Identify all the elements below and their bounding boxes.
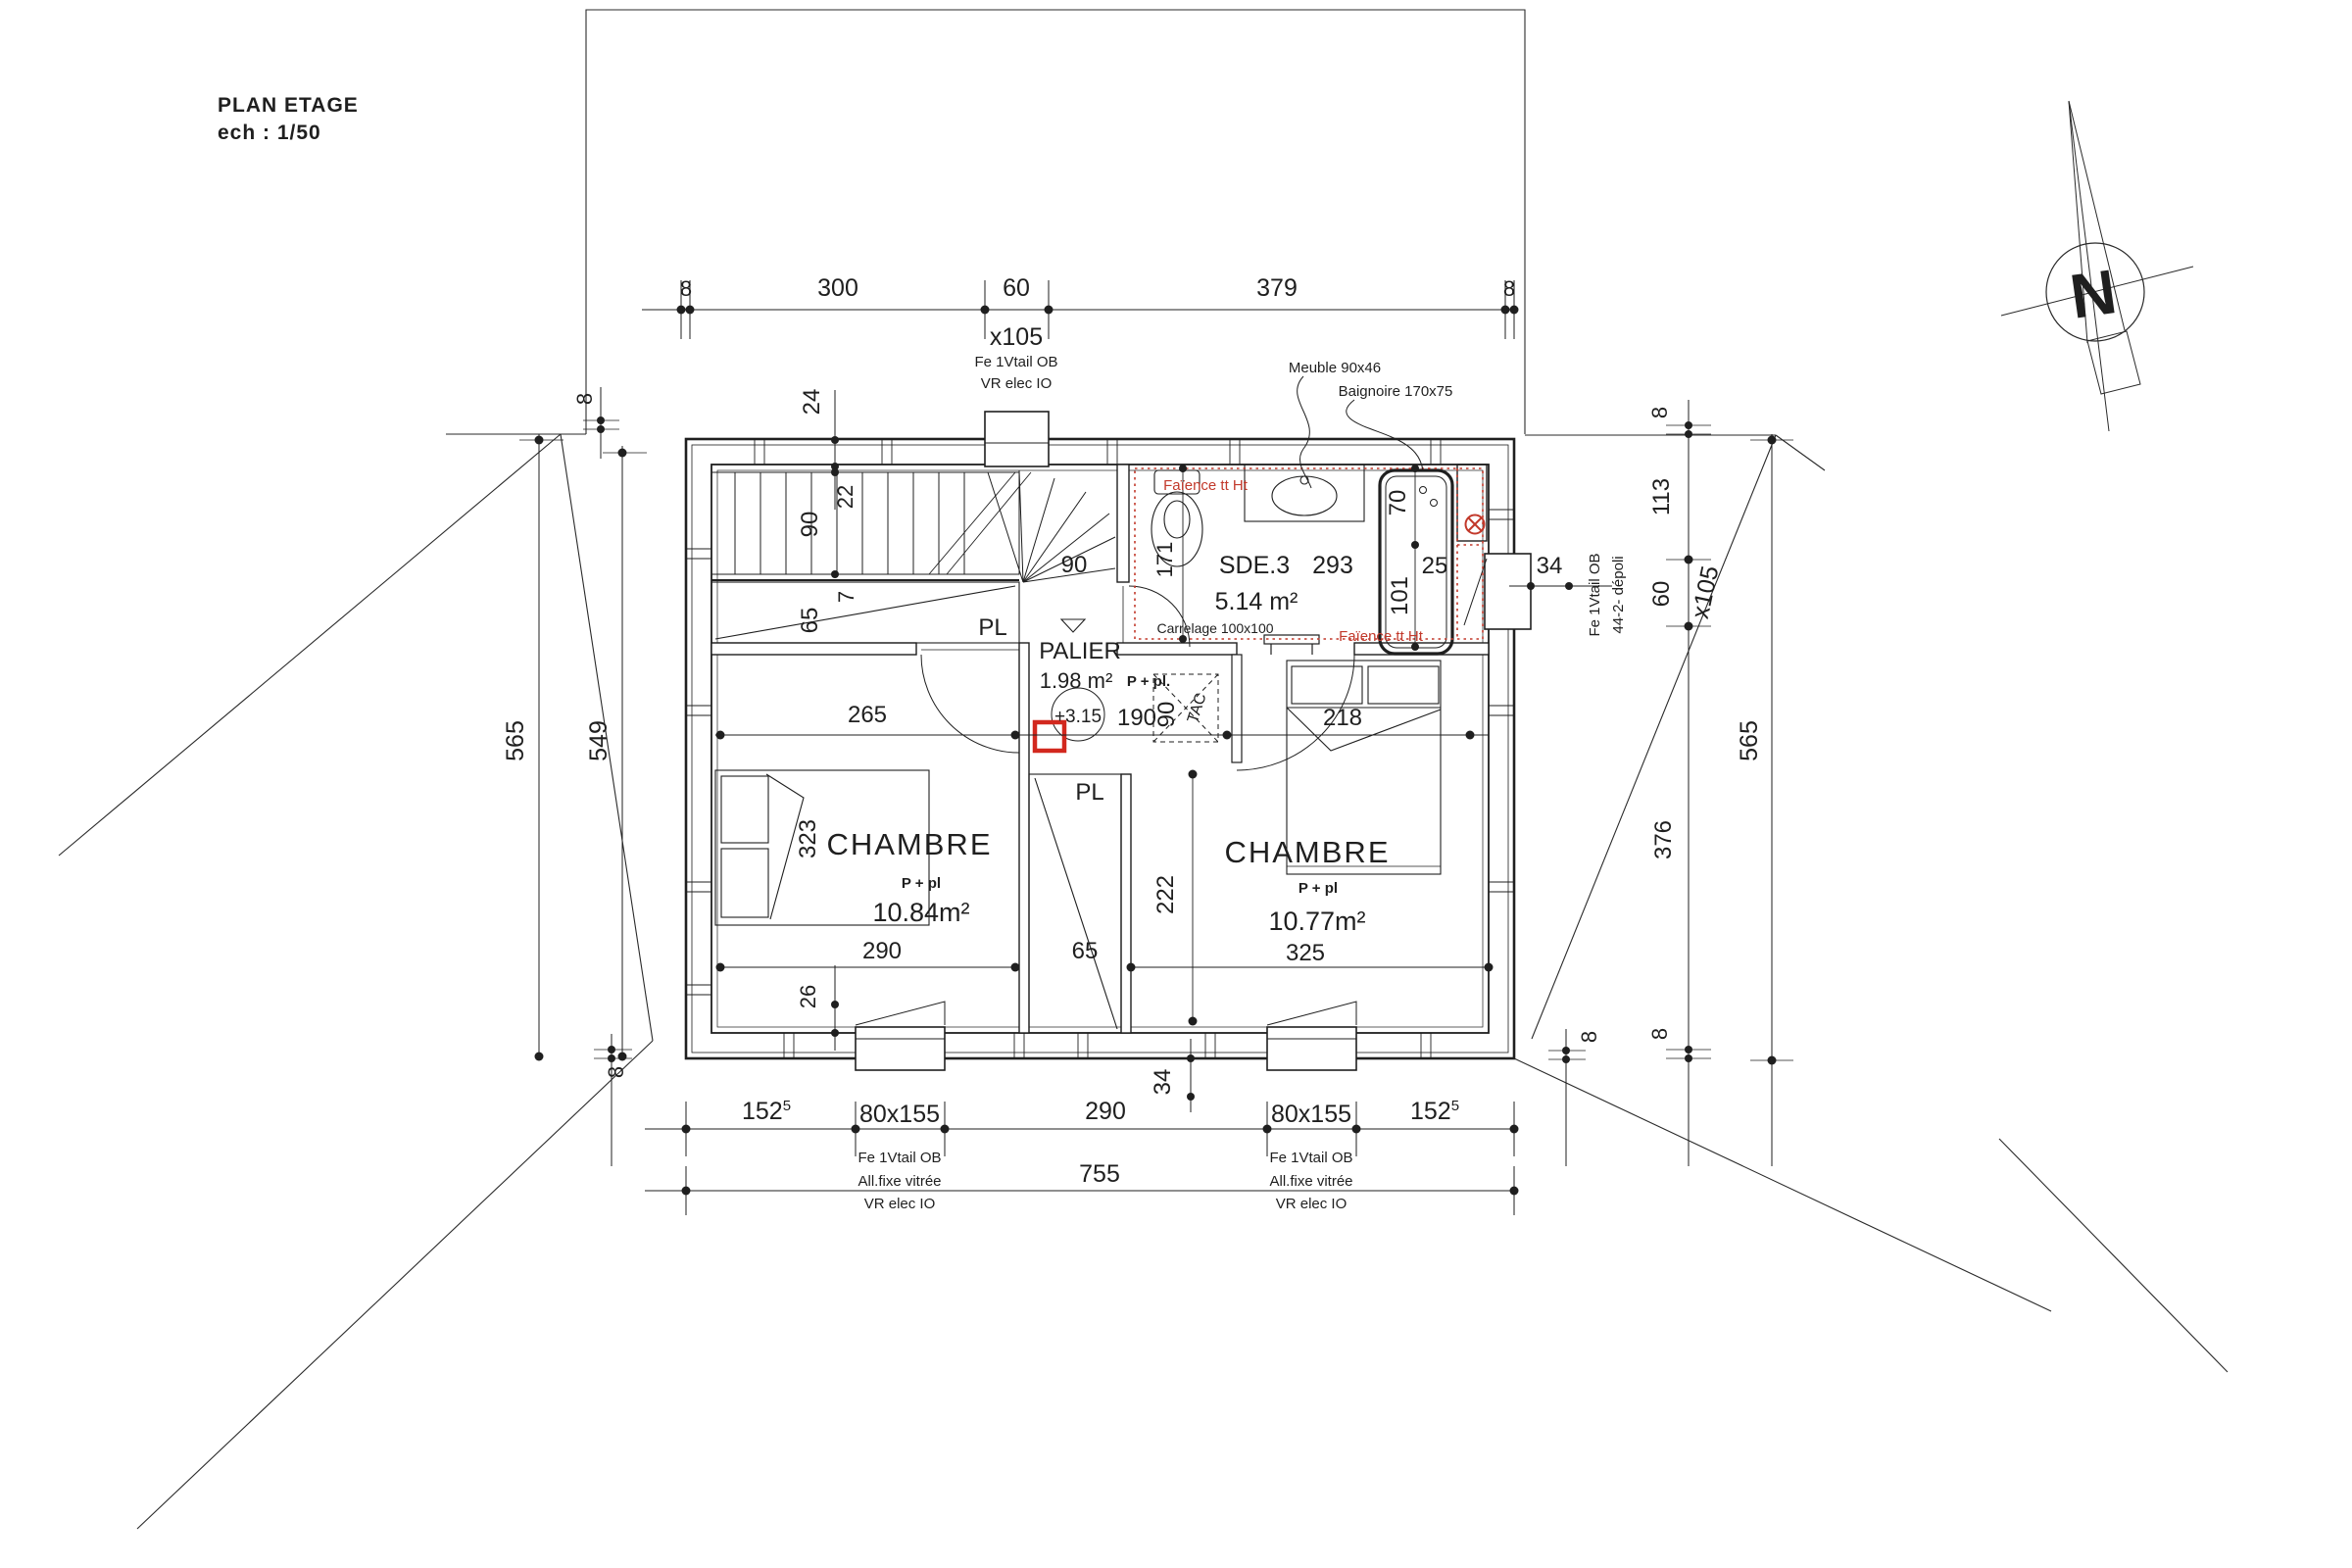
dim-stairs-7: 7: [834, 591, 858, 603]
dim-palier-190: 190: [1117, 705, 1156, 731]
dim-bedroom-left-290: 290: [862, 938, 902, 964]
window-top-note1: Fe 1Vtail OB: [974, 354, 1057, 370]
dim-bathroom-171: 171: [1152, 542, 1177, 578]
dim-palier-265: 265: [848, 702, 887, 728]
palier-ppl: P + pl.: [1127, 673, 1170, 690]
dim-bottom-755: 755: [1079, 1160, 1120, 1188]
callout-baignoire: Baignoire 170x75: [1339, 383, 1453, 400]
dim-left-24: 24: [799, 389, 825, 416]
dim-top-60: 60: [1003, 274, 1030, 302]
bedroom-right-west-wall: [1121, 774, 1131, 1033]
lot-boundary: [59, 10, 2228, 1529]
dim-right-376: 376: [1650, 820, 1677, 859]
bathroom-west-wall: [1117, 465, 1129, 582]
palier-level: +3.15: [1054, 707, 1102, 727]
window-top-size: x105: [990, 323, 1043, 351]
dim-bathroom-70: 70: [1385, 490, 1411, 516]
dim-bedroom-left-323: 323: [795, 819, 821, 858]
bedroom-left-east-wall: [1019, 643, 1029, 1033]
floor-plan-canvas: PLAN ETAGE ech : 1/50 N: [0, 0, 2352, 1568]
dim-bottom-8-corner: 8: [1577, 1031, 1601, 1043]
dim-bathroom-34: 34: [1537, 553, 1563, 579]
partition-walls: [711, 465, 1489, 1033]
dim-stairs-22: 22: [833, 485, 857, 509]
faience-note-top: Faïence tt Ht: [1163, 477, 1249, 494]
dim-left-8-bottom: 8: [604, 1066, 628, 1078]
closet-center-label: PL: [1075, 779, 1103, 806]
window-left-note1: Fe 1Vtail OB: [857, 1150, 941, 1166]
stair-direction-arrow-icon: [1061, 619, 1085, 632]
dim-bedroom-right-222: 222: [1152, 875, 1179, 914]
bedroom-left-north-wall: [711, 643, 916, 655]
window-right-note3: VR elec IO: [1276, 1196, 1347, 1212]
dim-stairs-65: 65: [797, 608, 823, 634]
window-bottom-right-80x155: [1267, 1002, 1356, 1070]
window-right-size: x105: [1687, 563, 1725, 621]
dim-bedroom-right-218: 218: [1323, 705, 1362, 731]
dim-top-8-right: 8: [1503, 276, 1515, 301]
window-right-34x105: [1464, 554, 1531, 629]
plan-title: PLAN ETAGE: [218, 94, 359, 117]
bedroom-right-ppl: P + pl: [1298, 880, 1338, 897]
palier-area: 1.98 m²: [1040, 668, 1113, 693]
dim-top-300: 300: [817, 274, 858, 302]
bathroom-floor-note: Carrelage 100x100: [1156, 620, 1273, 636]
bathroom-area: 5.14 m²: [1215, 588, 1298, 615]
bedroom-left-area: 10.84m²: [872, 898, 969, 927]
dim-stairs-90-winder: 90: [1061, 552, 1088, 578]
bedroom-left-name: CHAMBRE: [826, 827, 992, 861]
closet-center: [1029, 774, 1121, 1033]
window-right-note1: Fe 1Vtail OB: [1269, 1150, 1352, 1166]
dim-bedroom-left-26: 26: [796, 985, 820, 1008]
dim-left-8-top: 8: [572, 393, 597, 405]
dim-bathroom-101: 101: [1387, 576, 1413, 615]
dim-bathroom-293: 293: [1312, 552, 1353, 579]
windows: [856, 412, 1531, 1070]
window-bottom-left-80x155: [856, 1002, 945, 1070]
window-right-note-a: Fe 1Vtail OB: [1587, 553, 1603, 636]
bedroom-left-ppl: P + pl: [902, 875, 941, 892]
window-right-note2: All.fixe vitrée: [1269, 1173, 1352, 1190]
dim-bottom-window-right: 80x155: [1271, 1101, 1351, 1128]
dim-left-549: 549: [585, 720, 612, 761]
title-block: PLAN ETAGE ech : 1/50: [218, 94, 359, 144]
dim-right-60: 60: [1648, 581, 1675, 608]
bedroom-right-name: CHAMBRE: [1224, 835, 1390, 869]
dim-left-565: 565: [502, 720, 529, 761]
window-left-note3: VR elec IO: [864, 1196, 936, 1212]
faience-note-bottom: Faïence tt Ht: [1339, 628, 1424, 645]
dim-right-8-top: 8: [1647, 407, 1672, 418]
closet-top: [711, 582, 1019, 643]
window-right-note-b: 44-2- dépoli: [1610, 556, 1627, 633]
palier-name: PALIER: [1039, 638, 1121, 664]
dim-right-565: 565: [1736, 720, 1763, 761]
stairs: [711, 470, 1115, 582]
dim-top-379: 379: [1256, 274, 1298, 302]
valve-symbol-icon: [1466, 515, 1485, 534]
stool-icon: [1264, 635, 1319, 655]
dim-closet-center-65: 65: [1072, 938, 1099, 964]
dim-bottom-152-right: 1525: [1410, 1098, 1459, 1125]
dim-bedroom-right-325: 325: [1286, 940, 1325, 966]
dim-stairs-90: 90: [797, 512, 823, 538]
window-left-note2: All.fixe vitrée: [857, 1173, 941, 1190]
door-bedroom-left: [921, 650, 1019, 753]
dim-bottom-window-left: 80x155: [859, 1101, 940, 1128]
dim-palier-90: 90: [1153, 702, 1180, 728]
plan-scale: ech : 1/50: [218, 122, 321, 144]
dim-top-8-left: 8: [680, 276, 692, 301]
dim-bottom-152-left: 1525: [742, 1098, 791, 1125]
dim-bottom-290: 290: [1085, 1098, 1126, 1125]
window-top-note2: VR elec IO: [981, 375, 1053, 392]
bathroom-name: SDE.3: [1219, 552, 1290, 579]
dim-right-113: 113: [1648, 478, 1675, 515]
dim-bottom-34: 34: [1150, 1069, 1176, 1096]
bedroom-right-area: 10.77m²: [1268, 906, 1365, 936]
tac-label: TAC: [1185, 691, 1210, 725]
closet-top-label: PL: [978, 614, 1006, 641]
dim-bathroom-25: 25: [1422, 553, 1448, 579]
dim-right-8-bottom: 8: [1647, 1028, 1672, 1040]
callout-meuble: Meuble 90x46: [1289, 360, 1381, 376]
window-top-60x105: [985, 412, 1049, 466]
north-compass-icon: N: [2001, 101, 2193, 431]
north-label: N: [2066, 256, 2121, 332]
bathroom-south-wall-left: [1117, 643, 1237, 655]
